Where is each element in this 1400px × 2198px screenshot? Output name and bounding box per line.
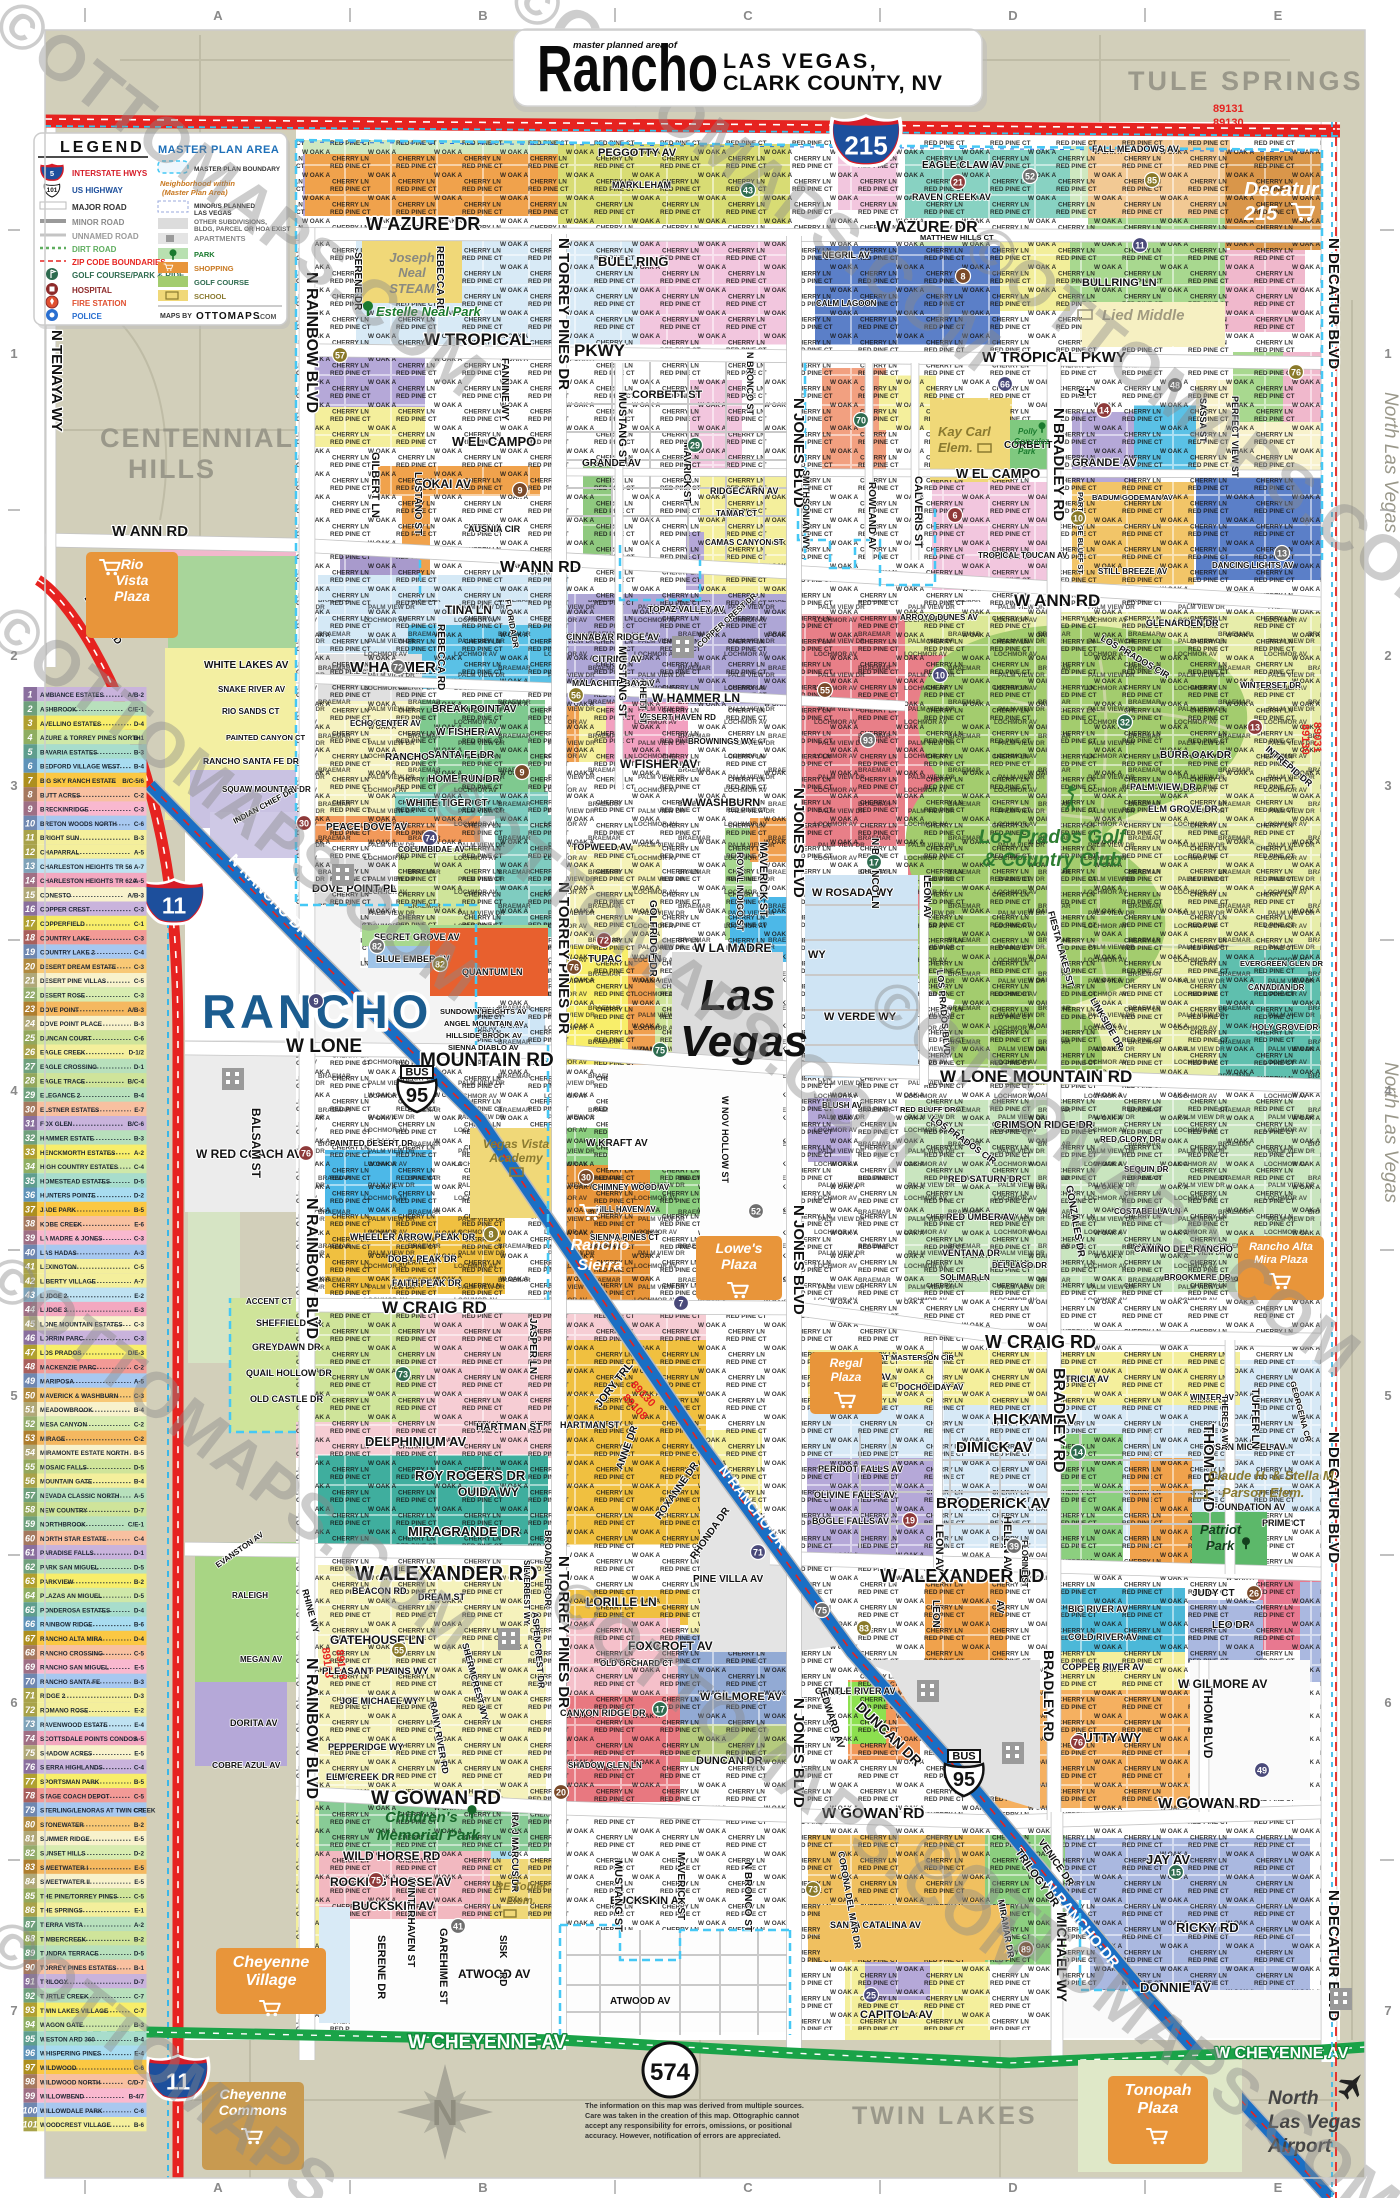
svg-text:5: 5 xyxy=(50,169,54,178)
svg-text:1: 1 xyxy=(10,346,17,361)
svg-text:SWEETWATER I: SWEETWATER I xyxy=(40,1865,88,1872)
svg-text:75: 75 xyxy=(655,1046,665,1056)
svg-text:RIO SANDS CT: RIO SANDS CT xyxy=(222,707,279,716)
svg-text:C-4: C-4 xyxy=(134,1164,145,1171)
svg-text:HOLY GROVE DR: HOLY GROVE DR xyxy=(1252,1023,1318,1032)
svg-text:Vista: Vista xyxy=(116,572,149,588)
svg-text:OLD CASTLE DR: OLD CASTLE DR xyxy=(250,1394,323,1404)
svg-text:Care was taken in the creation: Care was taken in the creation of this m… xyxy=(585,2111,800,2120)
svg-text:RANCHO CROSSING: RANCHO CROSSING xyxy=(40,1650,103,1657)
svg-text:DESERT DREAM ESTATE: DESERT DREAM ESTATE xyxy=(40,964,116,971)
svg-text:A-7: A-7 xyxy=(134,1279,145,1286)
svg-text:30: 30 xyxy=(581,1173,591,1183)
svg-text:JAY AV: JAY AV xyxy=(1146,1852,1190,1867)
svg-text:COPPER RIVER AV: COPPER RIVER AV xyxy=(1062,1662,1144,1672)
svg-text:66: 66 xyxy=(25,1619,36,1629)
svg-text:KOBE CREEK: KOBE CREEK xyxy=(40,1221,82,1228)
svg-text:3: 3 xyxy=(10,778,17,793)
svg-text:SERENE DR: SERENE DR xyxy=(375,1935,387,1999)
svg-text:3: 3 xyxy=(1384,778,1391,793)
svg-text:TUFFER LN: TUFFER LN xyxy=(1249,1388,1261,1449)
svg-text:A: A xyxy=(213,2180,223,2195)
svg-text:68: 68 xyxy=(25,1648,35,1658)
svg-text:67: 67 xyxy=(25,1633,36,1643)
svg-text:A-5: A-5 xyxy=(134,850,145,857)
svg-text:D-5: D-5 xyxy=(134,1951,145,1958)
svg-text:72: 72 xyxy=(25,1705,35,1715)
svg-text:75: 75 xyxy=(371,1876,381,1886)
svg-text:57: 57 xyxy=(335,351,345,361)
svg-text:Los Prados Golf: Los Prados Golf xyxy=(979,827,1127,848)
svg-text:2: 2 xyxy=(26,704,32,714)
svg-text:E: E xyxy=(1274,2180,1283,2195)
svg-text:FALL MEADOWS AV: FALL MEADOWS AV xyxy=(1092,144,1179,154)
svg-text:DOVE POINT: DOVE POINT xyxy=(40,1007,79,1014)
svg-text:85: 85 xyxy=(1147,176,1157,186)
svg-text:QUAIL HOLLOW DR: QUAIL HOLLOW DR xyxy=(246,1368,332,1378)
svg-text:SIENNA DIABLO AV: SIENNA DIABLO AV xyxy=(448,1043,519,1052)
svg-text:B: B xyxy=(478,8,487,23)
svg-text:BUTT ACRES: BUTT ACRES xyxy=(40,792,80,799)
svg-text:W HAMMER LN: W HAMMER LN xyxy=(652,691,740,705)
svg-text:SHADOW GLEN LN: SHADOW GLEN LN xyxy=(568,1761,642,1770)
svg-text:ROMANO ROSE: ROMANO ROSE xyxy=(40,1708,88,1715)
svg-text:57: 57 xyxy=(25,1490,36,1500)
svg-text:Academy: Academy xyxy=(488,1151,544,1165)
svg-text:B-1: B-1 xyxy=(134,1965,145,1972)
svg-text:C: C xyxy=(743,8,753,23)
svg-text:Elem.: Elem. xyxy=(938,440,973,455)
svg-text:29: 29 xyxy=(24,1090,35,1100)
svg-text:JUDY CT: JUDY CT xyxy=(1192,1588,1235,1599)
svg-text:JASPER LN: JASPER LN xyxy=(527,1318,538,1374)
svg-text:A-2: A-2 xyxy=(134,1150,145,1157)
svg-text:BROADRIVER DR: BROADRIVER DR xyxy=(543,1530,553,1607)
svg-text:73: 73 xyxy=(808,1885,818,1895)
svg-text:LUSTANO ST: LUSTANO ST xyxy=(412,472,423,535)
svg-text:19: 19 xyxy=(905,1516,915,1526)
svg-text:REBECCA RD: REBECCA RD xyxy=(435,624,446,690)
svg-text:MUSTANG ST: MUSTANG ST xyxy=(616,392,628,464)
svg-text:13: 13 xyxy=(1277,549,1287,559)
svg-text:W ROSADA WY: W ROSADA WY xyxy=(812,887,894,899)
svg-text:D: D xyxy=(1008,8,1017,23)
svg-text:D-4: D-4 xyxy=(134,1607,145,1614)
svg-text:BOGLE FALLS AV: BOGLE FALLS AV xyxy=(812,1516,889,1526)
svg-text:C-5: C-5 xyxy=(134,978,145,985)
svg-text:9: 9 xyxy=(27,804,32,814)
svg-text:C-6: C-6 xyxy=(134,1035,145,1042)
svg-text:B/C-4: B/C-4 xyxy=(128,1078,145,1085)
svg-text:LAS VEGAS,: LAS VEGAS, xyxy=(723,49,878,73)
svg-text:C-3: C-3 xyxy=(134,1321,145,1328)
svg-text:PEPPERIDGE WY: PEPPERIDGE WY xyxy=(328,1742,404,1752)
svg-text:D-5: D-5 xyxy=(134,1593,145,1600)
svg-text:Village: Village xyxy=(246,1972,297,1989)
svg-text:AV: AV xyxy=(994,1600,1005,1613)
svg-text:E-7: E-7 xyxy=(134,1107,144,1114)
svg-text:Kay Carl: Kay Carl xyxy=(938,424,991,439)
svg-text:US HIGHWAY: US HIGHWAY xyxy=(72,186,123,195)
svg-text:CANADIAN DR: CANADIAN DR xyxy=(1248,983,1305,992)
svg-text:C/E-1: C/E-1 xyxy=(128,1522,145,1529)
svg-text:CALVERIS ST: CALVERIS ST xyxy=(912,476,924,548)
svg-text:E-2: E-2 xyxy=(134,1293,144,1300)
svg-text:Patriot: Patriot xyxy=(1200,1522,1242,1537)
svg-text:N BRONCO ST: N BRONCO ST xyxy=(742,1862,753,1932)
svg-text:W ANN RD: W ANN RD xyxy=(112,523,188,540)
svg-text:STONEWATER: STONEWATER xyxy=(40,1822,84,1829)
svg-text:TULE SPRINGS: TULE SPRINGS xyxy=(1128,66,1364,96)
svg-text:83: 83 xyxy=(25,1862,35,1872)
svg-text:MOUNTAIN GATE: MOUNTAIN GATE xyxy=(40,1479,92,1486)
svg-text:31: 31 xyxy=(25,1119,35,1129)
svg-text:N DECATUR BLVD: N DECATUR BLVD xyxy=(1325,1432,1342,1563)
svg-text:COPPERFIELD: COPPERFIELD xyxy=(40,921,85,928)
svg-text:85: 85 xyxy=(25,1891,36,1901)
svg-text:E-5: E-5 xyxy=(134,1836,144,1843)
svg-text:D-5: D-5 xyxy=(134,1464,145,1471)
svg-text:56: 56 xyxy=(25,1476,36,1486)
svg-text:HARTMAN ST: HARTMAN ST xyxy=(476,1422,542,1433)
svg-text:76: 76 xyxy=(25,1762,36,1772)
svg-text:89131: 89131 xyxy=(1213,103,1244,115)
svg-text:RED UMBER AV: RED UMBER AV xyxy=(946,1212,1015,1222)
svg-text:26: 26 xyxy=(1249,1589,1259,1599)
svg-text:PLEASANT PLAINS WY: PLEASANT PLAINS WY xyxy=(322,1666,429,1677)
svg-text:C-3: C-3 xyxy=(134,907,145,914)
svg-text:76: 76 xyxy=(569,963,579,973)
svg-text:8: 8 xyxy=(27,790,32,800)
svg-text:REBECCA RD: REBECCA RD xyxy=(434,246,445,312)
svg-text:UNNAMED ROAD: UNNAMED ROAD xyxy=(72,232,139,241)
svg-text:TOPAZ VALLEY AV: TOPAZ VALLEY AV xyxy=(648,604,725,614)
svg-text:79: 79 xyxy=(25,1805,35,1815)
svg-text:CENTENNIAL: CENTENNIAL xyxy=(100,423,294,453)
svg-text:28: 28 xyxy=(24,1076,35,1086)
svg-text:D-1: D-1 xyxy=(134,1064,145,1071)
svg-text:LA MADRE & JONES: LA MADRE & JONES xyxy=(40,1236,102,1243)
svg-text:W KRAFT AV: W KRAFT AV xyxy=(586,1138,648,1149)
svg-text:MARKLEHAM: MARKLEHAM xyxy=(612,180,671,190)
svg-text:76: 76 xyxy=(1073,1738,1083,1748)
svg-text:C-5: C-5 xyxy=(134,1808,145,1815)
svg-text:RD: RD xyxy=(497,1972,508,1986)
svg-text:Park: Park xyxy=(1206,1538,1235,1553)
svg-text:84: 84 xyxy=(25,1877,35,1887)
svg-text:WILDWOOD NORTH: WILDWOOD NORTH xyxy=(40,2079,101,2086)
svg-text:FAITH PEAK DR: FAITH PEAK DR xyxy=(392,1278,462,1288)
svg-text:101: 101 xyxy=(22,2120,37,2130)
svg-text:73: 73 xyxy=(398,1370,408,1380)
svg-text:THE PINE/TORREY PINES: THE PINE/TORREY PINES xyxy=(40,1893,117,1900)
svg-text:LEO DR: LEO DR xyxy=(1212,1620,1251,1631)
svg-text:96: 96 xyxy=(25,2048,36,2058)
svg-text:W ALEXANDER RD: W ALEXANDER RD xyxy=(880,1566,1044,1586)
svg-text:52: 52 xyxy=(25,1419,35,1429)
svg-text:Elem.: Elem. xyxy=(506,1895,535,1907)
svg-text:HILLS: HILLS xyxy=(128,454,216,484)
svg-text:B-3: B-3 xyxy=(134,835,145,842)
svg-text:THOM BLVD: THOM BLVD xyxy=(1201,1688,1215,1759)
svg-text:W FISHER AV: W FISHER AV xyxy=(620,757,697,771)
svg-text:6: 6 xyxy=(952,511,957,521)
svg-text:PARK SAN MIGUEL: PARK SAN MIGUEL xyxy=(40,1565,99,1572)
svg-text:SPORTSMAN PARK: SPORTSMAN PARK xyxy=(40,1779,100,1786)
svg-text:B/C-5/6: B/C-5/6 xyxy=(122,778,144,785)
svg-text:BALSAM ST: BALSAM ST xyxy=(249,1108,263,1179)
svg-text:BAVARIA ESTATES: BAVARIA ESTATES xyxy=(40,749,97,756)
svg-text:FOUNDATION AV: FOUNDATION AV xyxy=(1212,1502,1285,1512)
svg-text:MUSTANG ST: MUSTANG ST xyxy=(612,1860,624,1932)
svg-text:89130: 89130 xyxy=(1213,117,1244,129)
svg-text:B-3: B-3 xyxy=(134,1136,145,1143)
svg-text:MAJOR ROAD: MAJOR ROAD xyxy=(72,203,127,212)
svg-text:DORITA AV: DORITA AV xyxy=(230,1718,278,1728)
svg-text:75: 75 xyxy=(25,1748,36,1758)
svg-text:C-6: C-6 xyxy=(134,821,145,828)
svg-text:W RED COACH AV: W RED COACH AV xyxy=(196,1147,302,1161)
svg-text:MAVERICK ST: MAVERICK ST xyxy=(757,842,769,917)
svg-text:47: 47 xyxy=(24,1347,36,1357)
svg-text:56: 56 xyxy=(571,691,581,701)
svg-text:CANYON RIDGE DR: CANYON RIDGE DR xyxy=(560,1708,646,1718)
svg-text:BADUM GODEMAN AV: BADUM GODEMAN AV xyxy=(1092,493,1173,502)
svg-text:69: 69 xyxy=(25,1662,35,1672)
svg-text:4: 4 xyxy=(26,733,32,743)
svg-text:B-2: B-2 xyxy=(134,1579,145,1586)
svg-text:82: 82 xyxy=(25,1848,35,1858)
svg-text:Parson Elem.: Parson Elem. xyxy=(1222,1485,1304,1500)
svg-text:Plaza: Plaza xyxy=(831,1370,862,1384)
svg-text:9: 9 xyxy=(519,768,524,778)
svg-text:VENTANA DR: VENTANA DR xyxy=(942,1248,1000,1258)
svg-text:39: 39 xyxy=(1009,1542,1019,1552)
svg-text:BRECKINRIDGE: BRECKINRIDGE xyxy=(40,807,89,814)
svg-text:65: 65 xyxy=(25,1605,36,1615)
svg-text:Polly: Polly xyxy=(1018,427,1038,436)
svg-text:GRANDE AV: GRANDE AV xyxy=(1072,457,1137,469)
svg-text:30: 30 xyxy=(25,1104,35,1114)
svg-text:C-3: C-3 xyxy=(134,1236,145,1243)
svg-text:A-5: A-5 xyxy=(134,1493,145,1500)
svg-text:17: 17 xyxy=(25,918,36,928)
svg-text:55: 55 xyxy=(25,1462,36,1472)
svg-text:39: 39 xyxy=(25,1233,35,1243)
svg-text:36: 36 xyxy=(25,1190,36,1200)
svg-text:LEON: LEON xyxy=(930,1600,941,1628)
svg-text:BUCKSKIN AV: BUCKSKIN AV xyxy=(352,1899,434,1913)
svg-text:MUSTANG ST: MUSTANG ST xyxy=(616,646,628,718)
svg-text:9: 9 xyxy=(517,486,522,496)
svg-text:SCOTTSDALE POINTS CONDOS: SCOTTSDALE POINTS CONDOS xyxy=(40,1736,137,1743)
svg-text:Decatur: Decatur xyxy=(1244,179,1320,201)
svg-text:HUNTERS POINTE: HUNTERS POINTE xyxy=(40,1193,96,1200)
svg-text:BRETON WOODS NORTH: BRETON WOODS NORTH xyxy=(40,821,117,828)
svg-text:58: 58 xyxy=(25,1505,35,1515)
svg-text:215: 215 xyxy=(1243,203,1278,225)
svg-text:95: 95 xyxy=(953,1769,975,1791)
svg-text:SUNSET HILLS: SUNSET HILLS xyxy=(40,1851,85,1858)
svg-text:EAGLE TRACE: EAGLE TRACE xyxy=(40,1078,85,1085)
svg-text:95: 95 xyxy=(25,2034,36,2044)
svg-text:55: 55 xyxy=(820,686,830,696)
svg-text:27: 27 xyxy=(24,1061,36,1071)
svg-text:DESERT ROSE: DESERT ROSE xyxy=(40,993,85,1000)
svg-text:BAT MASTERSON CIR: BAT MASTERSON CIR xyxy=(874,1353,954,1362)
svg-text:20: 20 xyxy=(24,961,35,971)
svg-text:6: 6 xyxy=(1384,1695,1391,1710)
svg-text:D-7: D-7 xyxy=(134,1979,145,1986)
svg-text:W AZURE DR: W AZURE DR xyxy=(366,214,480,234)
svg-text:OUIDA WY: OUIDA WY xyxy=(458,1485,519,1499)
svg-text:CAPITOLA AV: CAPITOLA AV xyxy=(860,2009,933,2021)
svg-text:CINNABAR RIDGE AV: CINNABAR RIDGE AV xyxy=(566,632,659,642)
svg-text:PEGGOTTY AV: PEGGOTTY AV xyxy=(598,147,677,159)
svg-text:DANCING LIGHTS AV: DANCING LIGHTS AV xyxy=(1212,561,1294,570)
svg-text:73: 73 xyxy=(25,1719,35,1729)
svg-text:SOLIMAR LN: SOLIMAR LN xyxy=(940,1273,990,1282)
svg-text:BRADLEY RD: BRADLEY RD xyxy=(1041,1650,1057,1742)
svg-text:A/B-3: A/B-3 xyxy=(128,1007,145,1014)
svg-text:WHITE LAKES AV: WHITE LAKES AV xyxy=(204,660,289,671)
svg-text:13: 13 xyxy=(25,861,35,871)
svg-text:STAGE COACH DEPOT: STAGE COACH DEPOT xyxy=(40,1793,110,1800)
svg-text:master planned area of: master planned area of xyxy=(573,40,678,51)
svg-text:B-2: B-2 xyxy=(134,1936,145,1943)
svg-text:N JONES BLVD: N JONES BLVD xyxy=(790,788,807,898)
svg-text:N DECATUR BLVD: N DECATUR BLVD xyxy=(1325,238,1342,369)
svg-text:Plaza: Plaza xyxy=(1138,2100,1179,2117)
svg-text:D-3: D-3 xyxy=(134,1693,145,1700)
svg-text:14: 14 xyxy=(1073,1448,1083,1458)
svg-text:JOE MICHAEL WY: JOE MICHAEL WY xyxy=(340,1696,418,1706)
svg-text:7: 7 xyxy=(678,1299,683,1309)
svg-text:N RAINBOW BLVD: N RAINBOW BLVD xyxy=(303,1658,320,1799)
svg-text:93: 93 xyxy=(863,736,873,746)
svg-text:C-3: C-3 xyxy=(134,964,145,971)
svg-text:DESERT HAVEN RD: DESERT HAVEN RD xyxy=(640,713,716,722)
svg-text:SMITHSONIAN WY: SMITHSONIAN WY xyxy=(801,470,811,550)
svg-text:32: 32 xyxy=(1120,718,1130,728)
svg-text:COLD RIVER AV: COLD RIVER AV xyxy=(1068,1632,1138,1642)
svg-text:C-2: C-2 xyxy=(134,1436,145,1443)
svg-text:STILL BREEZE AV: STILL BREEZE AV xyxy=(1098,567,1168,576)
svg-text:DEL LAGO DR: DEL LAGO DR xyxy=(992,1261,1047,1270)
svg-text:MESA CANYON: MESA CANYON xyxy=(40,1422,87,1429)
svg-text:N BRONCO LN: N BRONCO LN xyxy=(869,838,880,909)
svg-text:Plaza: Plaza xyxy=(721,1256,757,1272)
svg-text:GRANDE AV: GRANDE AV xyxy=(582,458,641,469)
svg-text:RIDGE 2: RIDGE 2 xyxy=(40,1693,66,1700)
svg-text:3: 3 xyxy=(27,718,32,728)
svg-text:574: 574 xyxy=(650,2059,691,2086)
svg-text:ROCKING HORSE AV: ROCKING HORSE AV xyxy=(330,1875,451,1889)
svg-text:N TENAYA WY: N TENAYA WY xyxy=(48,330,65,432)
svg-text:89031: 89031 xyxy=(1311,722,1323,753)
svg-text:The information on this map wa: The information on this map was derived … xyxy=(585,2101,804,2110)
svg-text:C-3: C-3 xyxy=(134,807,145,814)
svg-text:DIMICK AV: DIMICK AV xyxy=(956,1439,1033,1456)
svg-text:E-4: E-4 xyxy=(134,1722,144,1729)
svg-text:B-3: B-3 xyxy=(134,1679,145,1686)
svg-text:ELEGANCE 2: ELEGANCE 2 xyxy=(40,1093,81,1100)
svg-text:BREAK POINT AV: BREAK POINT AV xyxy=(432,704,517,715)
svg-text:INTERSTATE HWYS: INTERSTATE HWYS xyxy=(72,169,148,178)
svg-text:HOMESTEAD ESTATES: HOMESTEAD ESTATES xyxy=(40,1178,110,1185)
svg-text:W CRAIG RD: W CRAIG RD xyxy=(382,1298,487,1317)
svg-text:C-5: C-5 xyxy=(134,1650,145,1657)
svg-text:GLENARDEN DR: GLENARDEN DR xyxy=(1146,618,1219,628)
svg-text:E-5: E-5 xyxy=(134,1665,144,1672)
svg-text:E-3: E-3 xyxy=(134,1307,144,1314)
svg-text:SILVERBEST WY: SILVERBEST WY xyxy=(522,1560,531,1625)
svg-text:74: 74 xyxy=(25,1734,35,1744)
svg-text:N BRADLEY RD: N BRADLEY RD xyxy=(1050,408,1067,521)
svg-text:78: 78 xyxy=(25,1791,35,1801)
svg-text:RANCHO: RANCHO xyxy=(385,752,429,763)
svg-text:60: 60 xyxy=(25,1533,35,1543)
svg-text:A-7: A-7 xyxy=(134,864,145,871)
svg-text:8: 8 xyxy=(488,1230,493,1240)
svg-text:accuracy. However, notificatio: accuracy. However, notification of error… xyxy=(585,2131,781,2140)
svg-text:THERESA WY: THERESA WY xyxy=(1220,1395,1229,1449)
svg-text:ELSTNER ESTATES: ELSTNER ESTATES xyxy=(40,1107,99,1114)
svg-text:E-5: E-5 xyxy=(134,1750,144,1757)
svg-text:RANCHO: RANCHO xyxy=(202,985,432,1038)
svg-text:NORTH STAR ESTATE: NORTH STAR ESTATE xyxy=(40,1536,106,1543)
svg-text:D-4: D-4 xyxy=(134,1636,145,1643)
svg-text:Lowe's: Lowe's xyxy=(716,1240,763,1256)
svg-text:C-2: C-2 xyxy=(134,792,145,799)
svg-text:WOODCREST VILLAGE: WOODCREST VILLAGE xyxy=(40,2122,111,2129)
svg-text:CLARK COUNTY, NV: CLARK COUNTY, NV xyxy=(723,71,943,95)
svg-text:1: 1 xyxy=(1384,346,1391,361)
svg-text:PLAZAS AN MIGUEL: PLAZAS AN MIGUEL xyxy=(40,1593,102,1600)
svg-text:DIRT ROAD: DIRT ROAD xyxy=(72,245,117,254)
svg-text:Memorial Park: Memorial Park xyxy=(377,1827,480,1844)
svg-text:C-4: C-4 xyxy=(134,950,145,957)
svg-text:1: 1 xyxy=(27,690,32,700)
svg-text:70: 70 xyxy=(25,1676,35,1686)
svg-text:10: 10 xyxy=(1073,514,1083,524)
svg-text:25: 25 xyxy=(24,1033,36,1043)
svg-text:TAMAR CT: TAMAR CT xyxy=(716,509,757,518)
svg-text:SIERRA HIGHLANDS: SIERRA HIGHLANDS xyxy=(40,1765,103,1772)
svg-text:B-4: B-4 xyxy=(134,1093,145,1100)
svg-text:33: 33 xyxy=(25,1147,35,1157)
svg-text:ELM CREEK DR: ELM CREEK DR xyxy=(326,1772,395,1782)
svg-text:Joseph: Joseph xyxy=(389,250,435,265)
svg-text:A-3: A-3 xyxy=(134,1250,145,1257)
svg-text:GREYDAWN DR: GREYDAWN DR xyxy=(252,1342,321,1352)
svg-text:SISK: SISK xyxy=(497,1935,508,1959)
svg-text:WINTERHAVEN ST: WINTERHAVEN ST xyxy=(405,1878,416,1967)
svg-text:CHIMNEY WOOD AV: CHIMNEY WOOD AV xyxy=(592,1183,670,1192)
svg-text:29: 29 xyxy=(690,441,700,451)
svg-text:C-3: C-3 xyxy=(134,935,145,942)
svg-text:C-4: C-4 xyxy=(134,1536,145,1543)
svg-text:7: 7 xyxy=(1384,2003,1391,2018)
svg-text:B-5: B-5 xyxy=(134,1207,145,1214)
svg-text:MEADOWBROOK: MEADOWBROOK xyxy=(40,1407,93,1414)
svg-text:13: 13 xyxy=(1250,723,1260,733)
svg-text:LEON AV: LEON AV xyxy=(933,1524,945,1572)
svg-text:24: 24 xyxy=(24,1019,35,1029)
svg-text:COUNTRY LAKE 2: COUNTRY LAKE 2 xyxy=(40,950,95,957)
svg-text:Park: Park xyxy=(1018,447,1036,456)
svg-text:COPPER CREST: COPPER CREST xyxy=(40,907,90,914)
